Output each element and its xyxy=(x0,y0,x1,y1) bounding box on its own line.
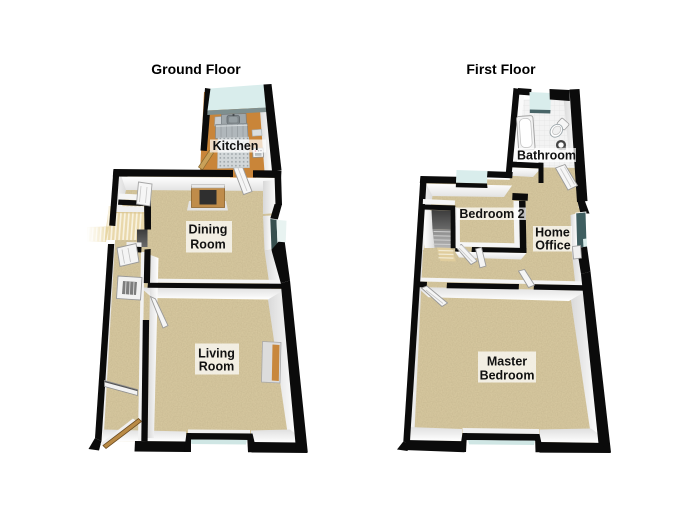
svg-text:Kitchen: Kitchen xyxy=(213,139,259,153)
svg-text:Home: Home xyxy=(535,226,570,240)
svg-text:First Floor: First Floor xyxy=(466,61,536,77)
svg-text:Room: Room xyxy=(190,238,225,252)
svg-text:Bedroom 2: Bedroom 2 xyxy=(459,207,524,221)
svg-text:Master: Master xyxy=(487,355,527,369)
svg-text:Room: Room xyxy=(199,360,234,374)
svg-text:Dining: Dining xyxy=(189,223,228,237)
svg-text:Ground Floor: Ground Floor xyxy=(151,61,241,77)
svg-text:Bathroom: Bathroom xyxy=(517,149,576,163)
svg-text:Bedroom: Bedroom xyxy=(480,369,535,383)
svg-text:Living: Living xyxy=(198,347,235,361)
svg-text:Office: Office xyxy=(535,239,570,253)
